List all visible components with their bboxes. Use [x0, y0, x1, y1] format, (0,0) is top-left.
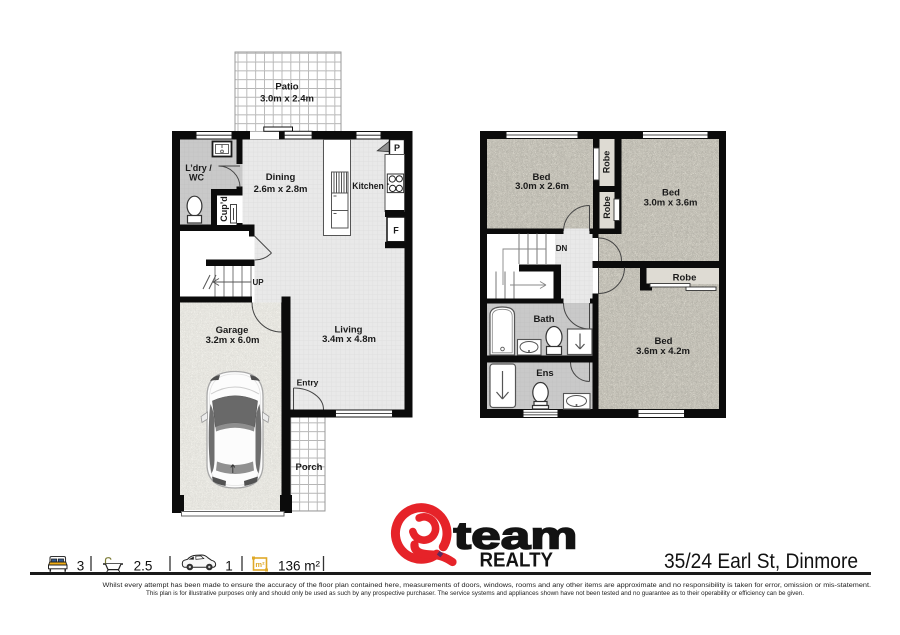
svg-text:Robe: Robe — [673, 273, 697, 284]
svg-text:Ens: Ens — [536, 368, 553, 379]
svg-text:Dining: Dining — [266, 172, 296, 183]
svg-text:F: F — [393, 226, 399, 236]
svg-text:L’dry /: L’dry / — [185, 163, 212, 173]
svg-text:2.5: 2.5 — [134, 559, 153, 574]
svg-text:Patio: Patio — [275, 82, 298, 93]
svg-text:3: 3 — [77, 559, 85, 574]
svg-text:Robe: Robe — [602, 196, 612, 219]
svg-text:Kitchen: Kitchen — [352, 181, 384, 192]
svg-text:This plan is for illustrative: This plan is for illustrative purposes o… — [146, 590, 804, 597]
svg-text:3.0m x 3.6m: 3.0m x 3.6m — [644, 198, 698, 209]
svg-text:P: P — [394, 143, 400, 153]
svg-text:136 m²: 136 m² — [278, 559, 321, 574]
svg-text:Porch: Porch — [296, 462, 323, 473]
svg-text:UP: UP — [252, 278, 264, 287]
svg-text:REALTY: REALTY — [480, 549, 554, 572]
svg-text:3.0m x 2.4m: 3.0m x 2.4m — [260, 94, 314, 105]
svg-text:3.0m x 2.6m: 3.0m x 2.6m — [515, 181, 569, 192]
svg-text:3.2m x 6.0m: 3.2m x 6.0m — [206, 335, 260, 346]
svg-text:DN: DN — [556, 244, 568, 253]
svg-text:35/24 Earl St, Dinmore: 35/24 Earl St, Dinmore — [664, 549, 858, 573]
svg-text:3.4m x 4.8m: 3.4m x 4.8m — [322, 334, 376, 345]
svg-text:m²: m² — [255, 560, 265, 569]
svg-text:Bath: Bath — [533, 314, 554, 325]
svg-text:Robe: Robe — [602, 151, 612, 174]
svg-text:WC: WC — [189, 173, 204, 183]
svg-text:2.6m x 2.8m: 2.6m x 2.8m — [254, 184, 308, 195]
svg-text:1: 1 — [225, 559, 233, 574]
svg-text:Entry: Entry — [297, 378, 319, 388]
svg-text:3.6m x 4.2m: 3.6m x 4.2m — [636, 346, 690, 357]
svg-text:Cup’d: Cup’d — [219, 196, 229, 222]
svg-text:Whilst every attempt has been: Whilst every attempt has been made to en… — [103, 582, 872, 589]
